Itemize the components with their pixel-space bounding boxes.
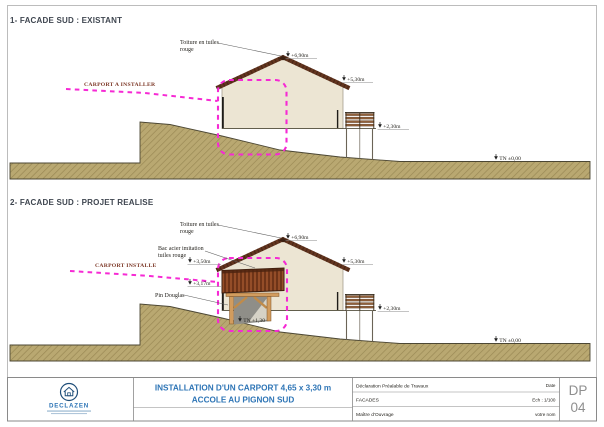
annotation-text: Pin Douglas (155, 293, 185, 299)
sheet-code-dp: DP (569, 383, 588, 398)
level-text: TN +1,30 (243, 318, 265, 324)
annotation-text: tuiles rouge (158, 253, 186, 259)
level-text: TN ±0,00 (499, 338, 521, 344)
info-row-label: Maître d'Ouvrage (356, 412, 394, 418)
info-row-label: Déclaration Préalable de Travaux (356, 384, 429, 390)
info-row-value: Ech : 1/100 (532, 398, 556, 403)
carport-post (230, 297, 234, 325)
annotation-text: rouge (180, 47, 194, 53)
info-row-value: votre nom (535, 412, 556, 417)
section-heading-projet: 2- FACADE SUD : PROJET REALISE (10, 198, 154, 207)
level-text: +5,30m (347, 259, 365, 265)
plan-canvas: 1- FACADE SUD : EXISTANT (0, 0, 604, 427)
level-text: +2,30m (383, 306, 401, 312)
level-text: +6,90m (291, 235, 309, 241)
section-heading-existant: 1- FACADE SUD : EXISTANT (10, 16, 122, 25)
logo-name: DECLAZEN (49, 403, 89, 410)
level-text: +5,30m (347, 77, 365, 83)
annotation-text: Toiture en tuiles (180, 222, 220, 228)
carport-post (267, 297, 271, 322)
sheet-code-number: 04 (570, 400, 586, 415)
level-text: +2,30m (383, 124, 401, 130)
info-row-value: Date (546, 383, 556, 388)
logo-tagline (47, 411, 91, 412)
title-block: DECLAZEN INSTALLATION D'UN CARPORT 4,65 … (8, 378, 597, 422)
facade-plan-sheet: 1- FACADE SUD : EXISTANT (0, 0, 604, 427)
project-title-line2: ACCOLE AU PIGNON SUD (192, 396, 295, 405)
level-text: +3,50m (193, 259, 211, 265)
carport-label: CARPORT A INSTALLER (84, 82, 156, 88)
annotation-text: Toiture en tuiles (180, 40, 220, 46)
annotation-text: Bac acier imitation (158, 246, 204, 252)
carport-label: CARPORT INSTALLE (95, 263, 157, 269)
project-title-line1: INSTALLATION D'UN CARPORT 4,65 x 3,30 m (155, 384, 331, 393)
carport-beam (226, 293, 279, 297)
level-text: +3,17m (193, 281, 211, 287)
annotation-text: rouge (180, 229, 194, 235)
level-text: TN ±0,00 (499, 156, 521, 162)
info-row-label: FACADES (356, 398, 380, 404)
level-text: +6,90m (291, 53, 309, 59)
logo-tagline (51, 413, 87, 414)
